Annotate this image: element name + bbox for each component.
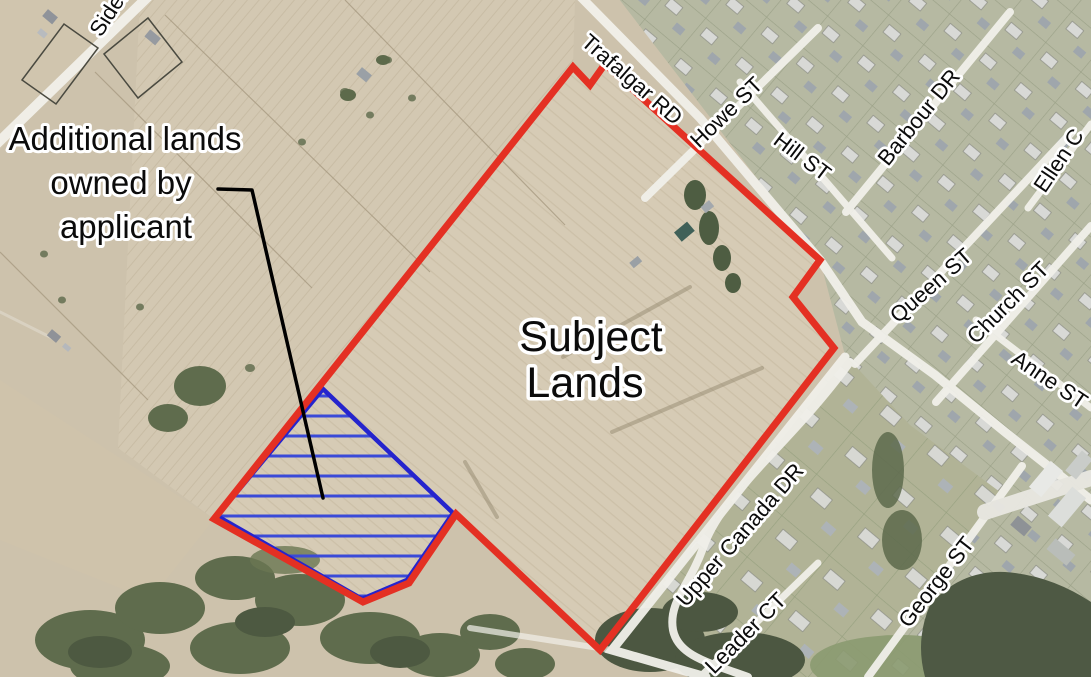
additional-lands-label-line1: Additional lands — [9, 120, 242, 157]
subject-lands-label: Subject Lands — [519, 313, 662, 407]
map-svg: Sideroad Trafalgar RD Howe ST Hill ST Ba… — [0, 0, 1091, 677]
additional-lands-label-line3: applicant — [60, 208, 192, 245]
additional-lands-label-line2: owned by — [50, 164, 192, 201]
aerial-map: Sideroad Trafalgar RD Howe ST Hill ST Ba… — [0, 0, 1091, 677]
subject-lands-label-line1: Subject — [519, 313, 662, 361]
subject-lands-label-line2: Lands — [526, 359, 643, 407]
